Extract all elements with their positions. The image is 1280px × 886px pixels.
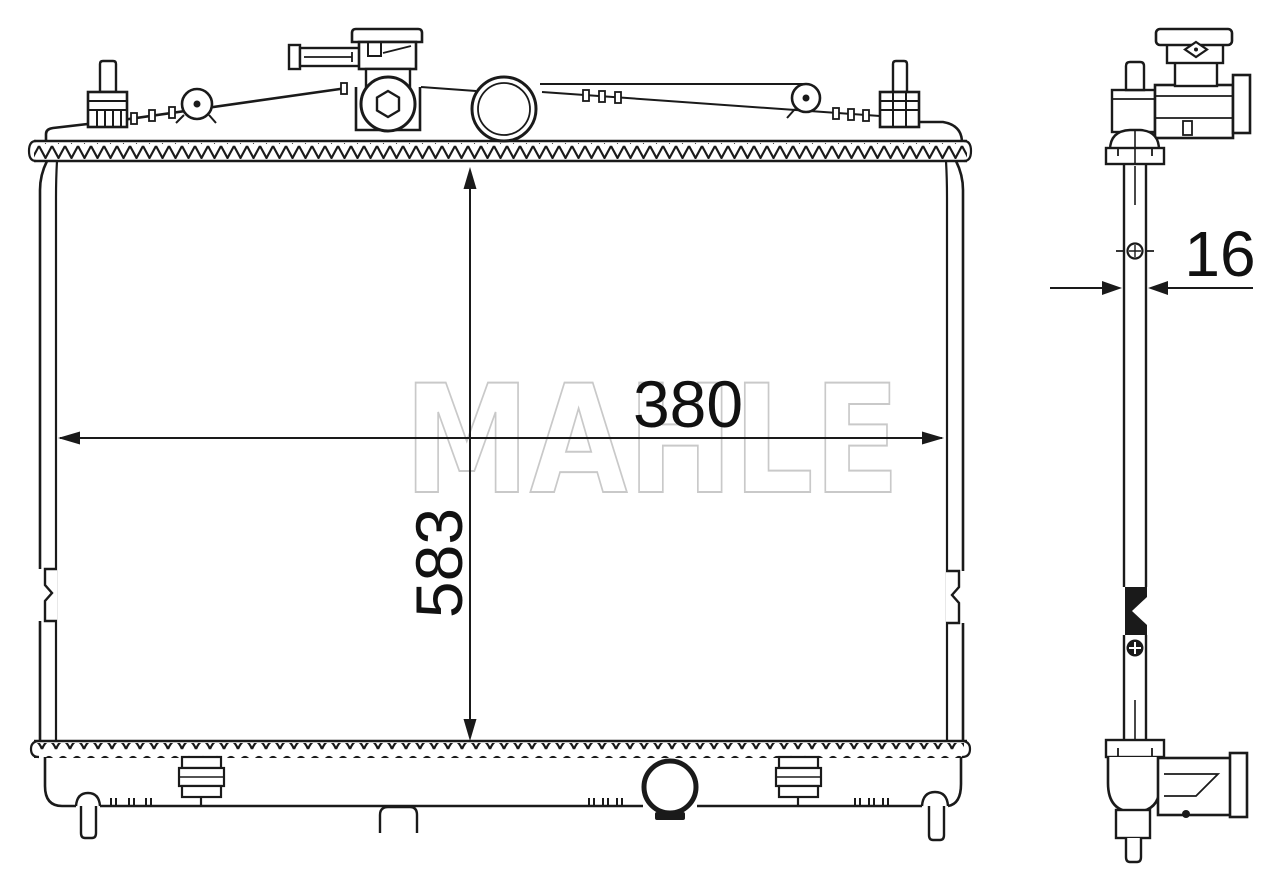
core-edge-left-inner	[56, 161, 57, 741]
radiator-drawing: MAHLE	[0, 0, 1280, 886]
core-edge-right-inner	[946, 161, 947, 741]
top-crimp-band	[29, 141, 971, 161]
pin-arch	[76, 793, 100, 806]
side-neck	[1175, 62, 1217, 86]
side-left-unit	[1112, 90, 1155, 132]
overflow-pipe-endcap	[289, 45, 300, 69]
bracket-bottom	[182, 786, 221, 797]
grommet-center-dot	[194, 101, 201, 108]
dimension-thickness-label: 16	[1184, 218, 1255, 290]
center-mount-foot	[380, 807, 417, 833]
bracket-top	[182, 757, 221, 768]
pin-stem	[893, 61, 907, 92]
side-tank-dome	[1108, 757, 1160, 812]
dimension-width-label: 380	[633, 367, 743, 441]
side-outlet-pipe	[1158, 758, 1232, 815]
drain-plug-tab	[655, 812, 685, 820]
side-bottom-pin-tab	[1126, 838, 1141, 862]
side-bottom-pin-base	[1116, 810, 1150, 838]
side-bottom-collar	[1106, 740, 1164, 757]
bead-clip	[599, 91, 605, 102]
bracket-top	[779, 757, 818, 768]
side-flange	[1233, 75, 1250, 133]
bottom-band-scallops	[34, 743, 964, 758]
band-teeth	[34, 143, 967, 159]
side-outlet-dot	[1182, 810, 1190, 818]
bead-clip	[833, 108, 839, 119]
bead-clip	[863, 110, 869, 121]
drain-plug-ring-icon	[644, 761, 696, 813]
pin-arch	[922, 792, 948, 806]
side-pin	[1126, 62, 1144, 90]
bead-clip	[169, 107, 175, 118]
filler-opening-outer	[472, 77, 536, 141]
grommet-center-dot	[803, 95, 810, 102]
pin-stem	[81, 806, 96, 838]
cap-diamond-dot	[1194, 48, 1198, 52]
bracket-bottom	[779, 786, 818, 797]
bead-clip	[131, 113, 137, 124]
pin-stem	[929, 806, 944, 840]
side-outlet-flange	[1230, 753, 1247, 817]
bead-clip	[848, 109, 854, 120]
side-main-body	[1155, 85, 1233, 138]
bead-clip	[615, 92, 621, 103]
filler-opening	[472, 77, 536, 141]
cap-top-plate	[352, 29, 422, 42]
dimension-height-label: 583	[402, 508, 476, 618]
strip-break-symbol	[1125, 587, 1147, 635]
bead-clip	[341, 83, 347, 94]
bead-clip	[583, 90, 589, 101]
strip-bolt	[1127, 640, 1144, 657]
filler-neck-circle	[361, 77, 415, 131]
bead-clip	[149, 110, 155, 121]
technical-drawing-canvas: MAHLE	[0, 0, 1280, 886]
pin-stem	[100, 61, 116, 92]
